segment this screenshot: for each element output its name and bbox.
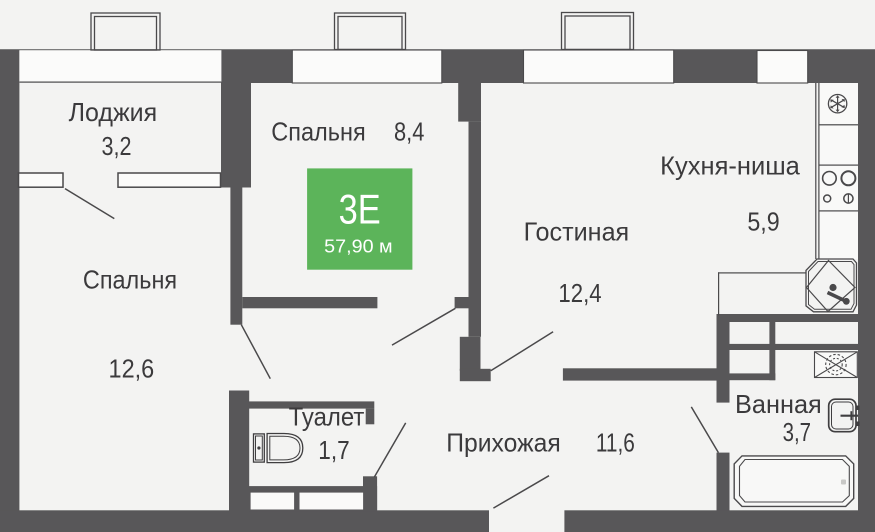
svg-text:3,2: 3,2 — [102, 131, 132, 161]
svg-text:57,90 м: 57,90 м — [324, 237, 392, 257]
svg-text:12,6: 12,6 — [109, 354, 155, 384]
svg-text:11,6: 11,6 — [596, 427, 635, 457]
svg-text:Гостиная: Гостиная — [524, 217, 630, 247]
svg-text:Спальня: Спальня — [271, 116, 366, 146]
svg-text:Спальня: Спальня — [83, 265, 177, 295]
svg-text:5,9: 5,9 — [747, 207, 779, 237]
svg-text:8,4: 8,4 — [394, 116, 424, 146]
svg-text:Кухня-ниша: Кухня-ниша — [660, 150, 800, 180]
svg-text:3Е: 3Е — [339, 186, 381, 233]
svg-text:Лоджия: Лоджия — [69, 97, 158, 127]
svg-text:3,7: 3,7 — [783, 417, 811, 447]
svg-text:Прихожая: Прихожая — [446, 427, 560, 457]
svg-text:Туалет: Туалет — [289, 402, 365, 432]
svg-text:12,4: 12,4 — [558, 278, 601, 308]
svg-text:1,7: 1,7 — [318, 435, 349, 465]
svg-text:Ванная: Ванная — [735, 389, 822, 419]
